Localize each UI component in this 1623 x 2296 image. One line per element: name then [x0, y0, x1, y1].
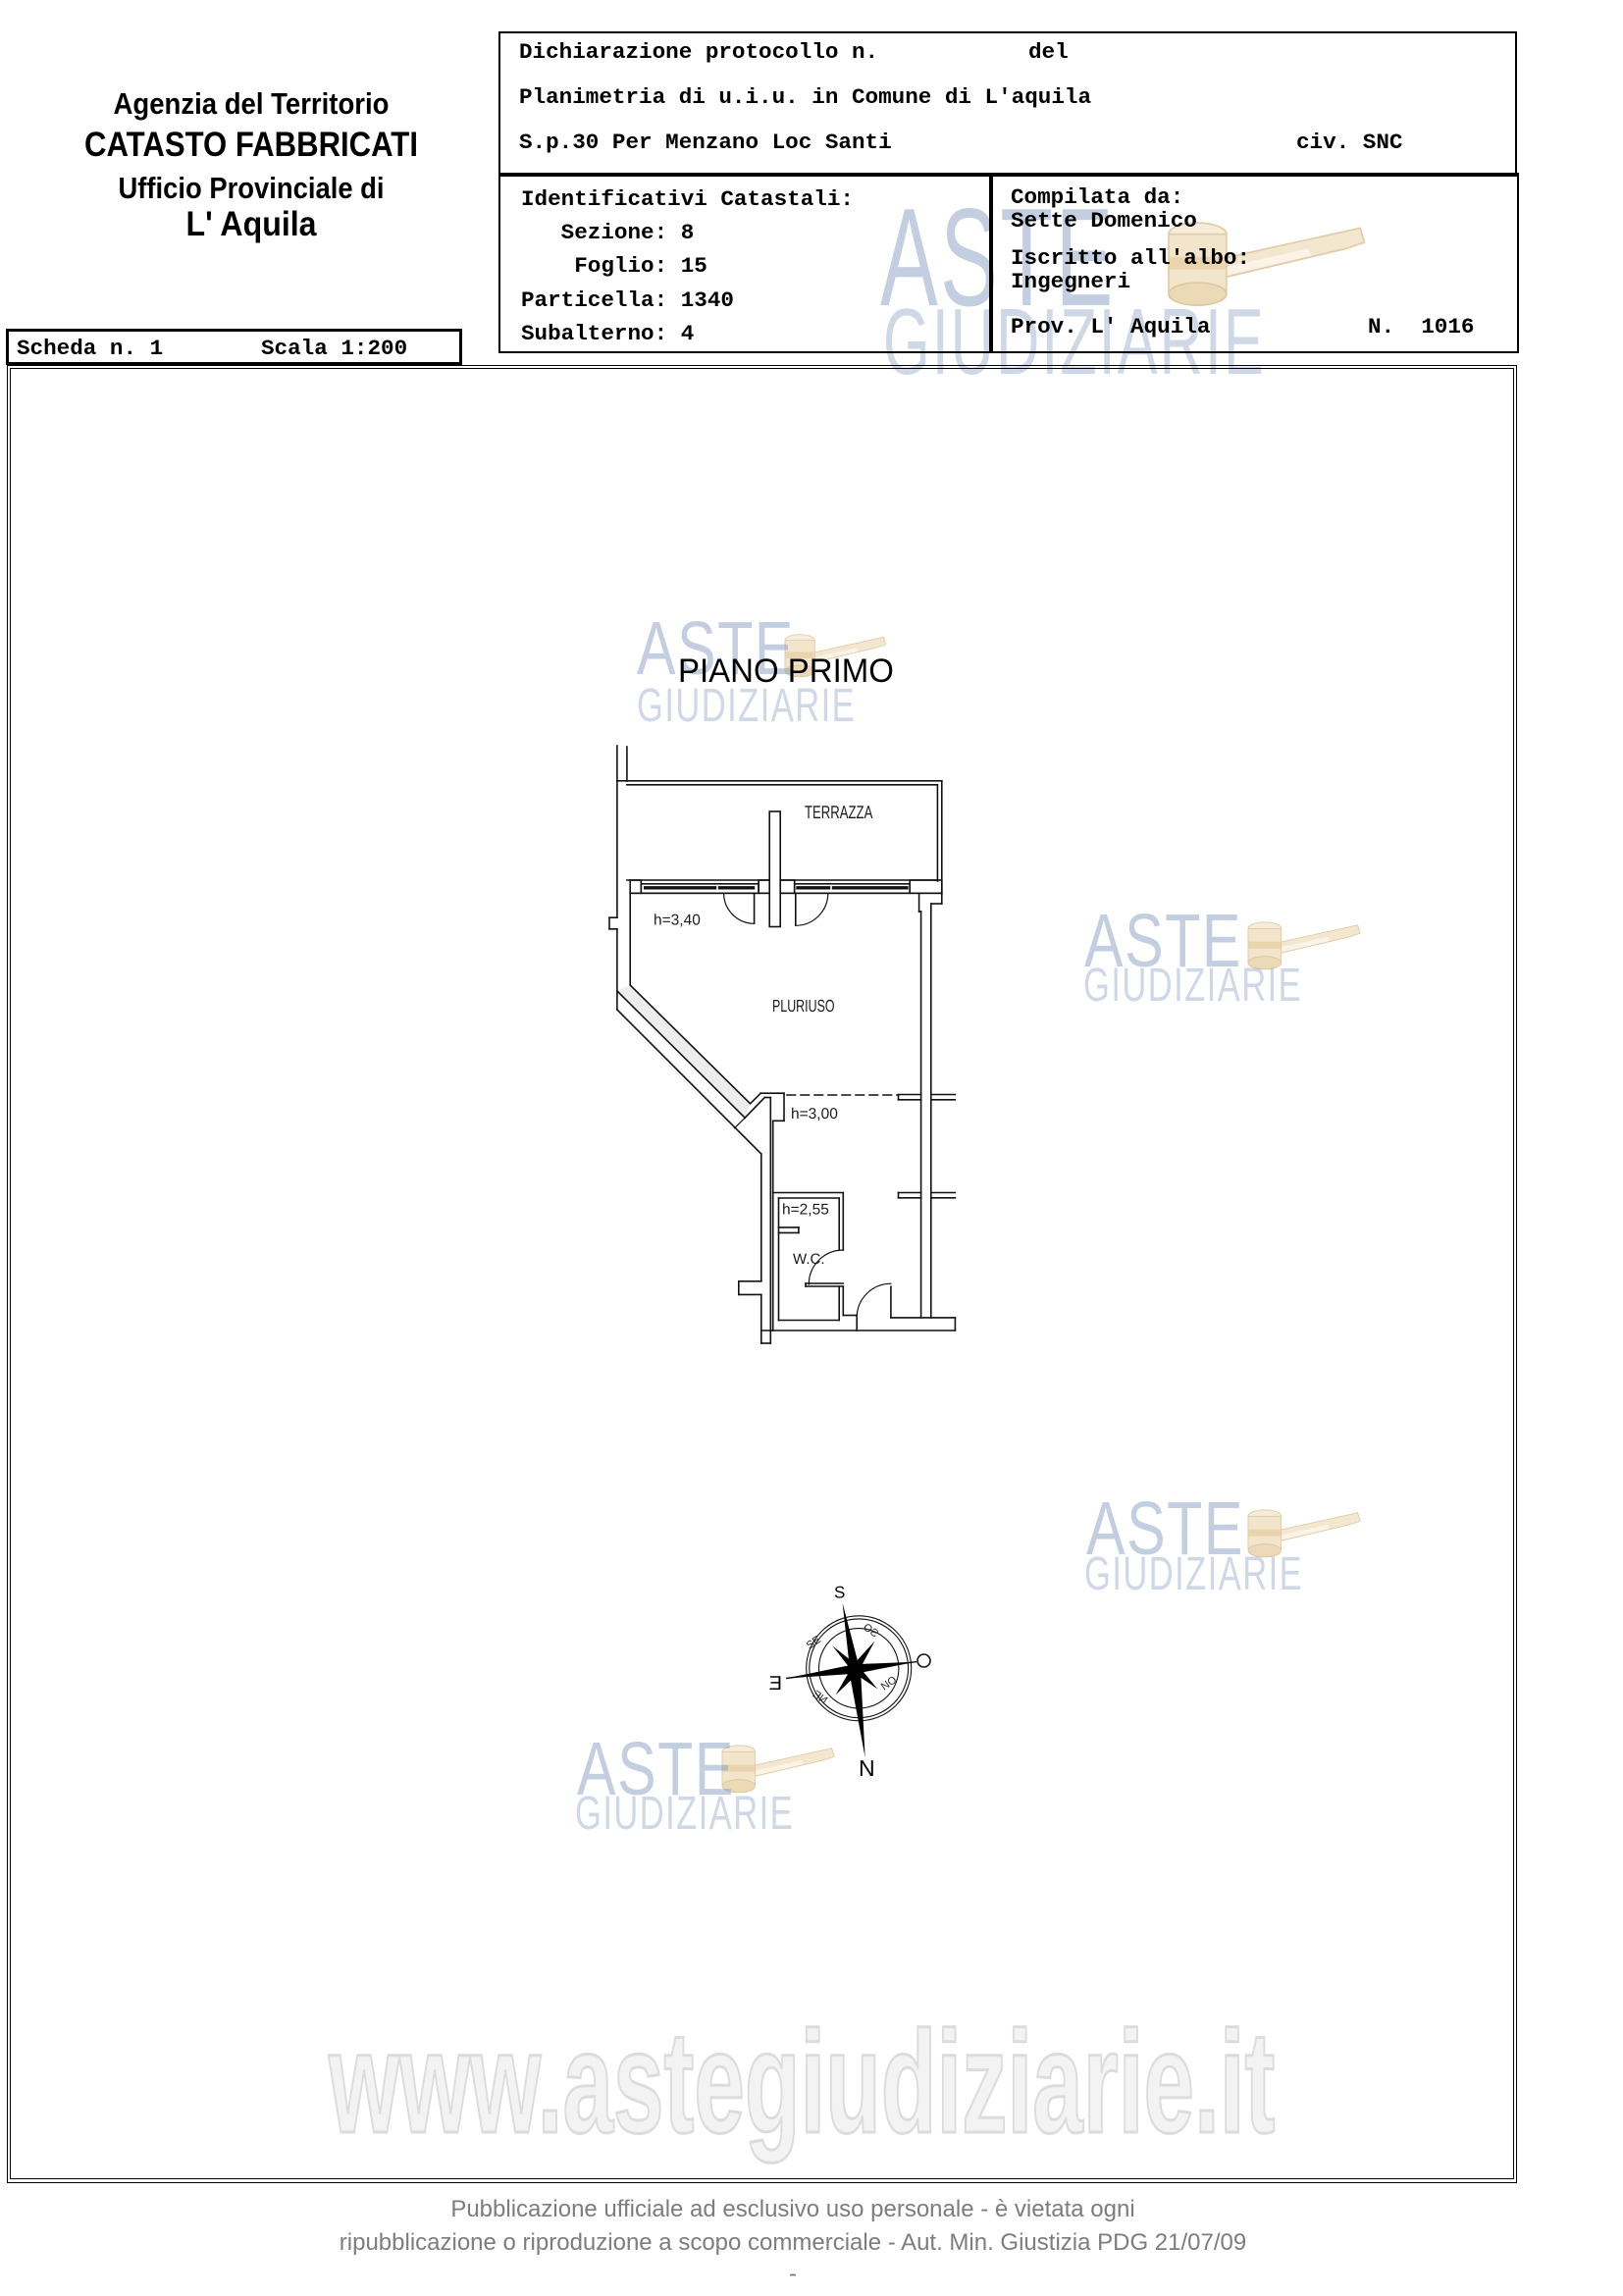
svg-text:www.astegiudiziarie.it: www.astegiudiziarie.it: [328, 2002, 1275, 2164]
